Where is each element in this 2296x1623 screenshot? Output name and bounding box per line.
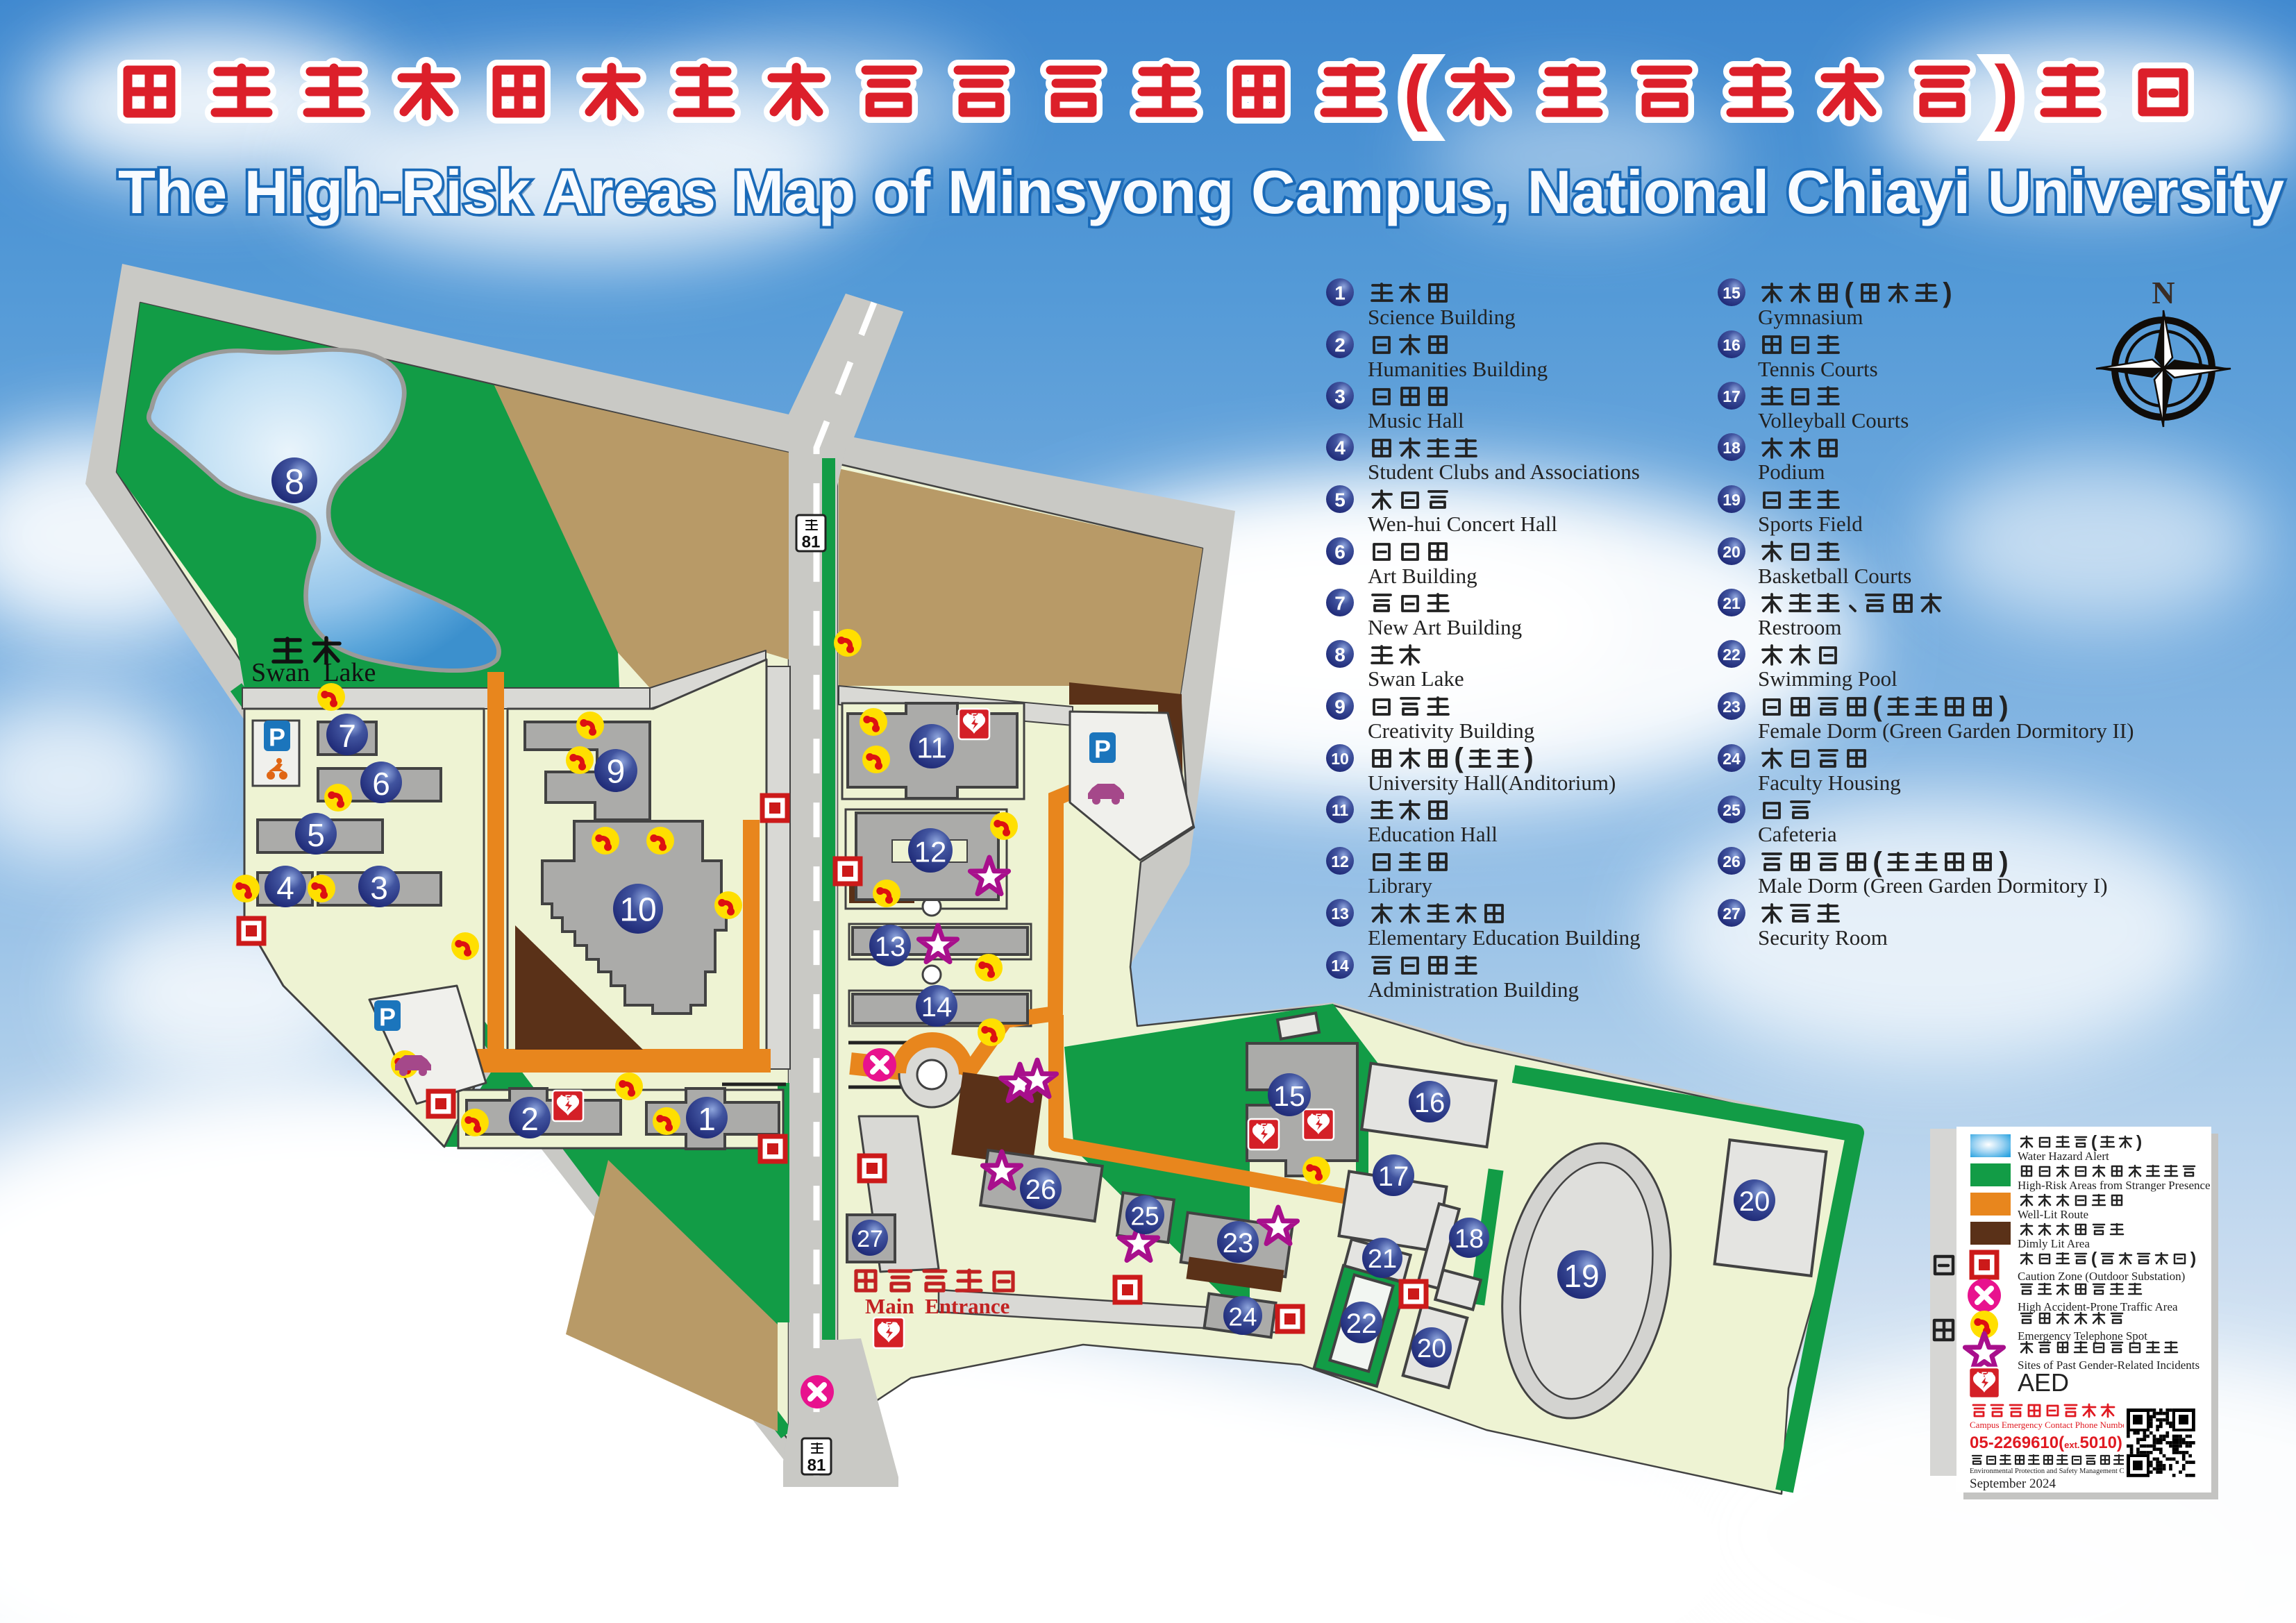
svg-text:Library: Library (1368, 873, 1432, 898)
svg-text:21: 21 (1368, 1245, 1397, 1274)
svg-text:Podium: Podium (1758, 460, 1825, 484)
svg-text:16: 16 (1723, 336, 1741, 354)
svg-text:Water Hazard Alert: Water Hazard Alert (2018, 1150, 2109, 1163)
svg-text:9: 9 (607, 754, 626, 791)
svg-text:20: 20 (1739, 1186, 1770, 1217)
svg-text:23: 23 (1223, 1228, 1254, 1259)
svg-text:24: 24 (1228, 1303, 1257, 1331)
svg-text:Main Entrance: Main Entrance (865, 1294, 1009, 1318)
svg-text:25: 25 (1130, 1202, 1159, 1231)
svg-text:Restroom: Restroom (1758, 615, 1842, 639)
svg-text:Humanities Building: Humanities Building (1368, 357, 1548, 381)
svg-text:Education Hall: Education Hall (1368, 822, 1498, 846)
svg-text:Sports Field: Sports Field (1758, 512, 1863, 536)
svg-text:(: ( (1872, 691, 1882, 722)
svg-text:Swimming Pool: Swimming Pool (1758, 666, 1897, 691)
svg-text:11: 11 (1332, 801, 1349, 819)
svg-text:(: ( (1454, 743, 1464, 773)
svg-text:27: 27 (857, 1226, 883, 1252)
svg-text:Male Dorm (Green Garden Dormit: Male Dorm (Green Garden Dormitory I) (1758, 873, 2108, 898)
svg-text:7: 7 (338, 718, 356, 754)
svg-text:Security Room: Security Room (1758, 925, 1888, 950)
svg-text:Elementary Education Building: Elementary Education Building (1368, 925, 1641, 950)
svg-text:Science Building: Science Building (1368, 305, 1516, 329)
svg-text:Student Clubs and Associations: Student Clubs and Associations (1368, 460, 1640, 484)
svg-text:4: 4 (276, 870, 294, 906)
svg-text:Female Dorm (Green Garden Dorm: Female Dorm (Green Garden Dormitory II) (1758, 718, 2134, 743)
svg-text:12: 12 (1331, 852, 1349, 871)
svg-text:2: 2 (1334, 335, 1346, 356)
svg-text:(: ( (2091, 1249, 2097, 1268)
svg-text:(: ( (2091, 1132, 2097, 1152)
svg-text:27: 27 (1723, 905, 1741, 923)
svg-text:The High-Risk Areas Map of Min: The High-Risk Areas Map of Minsyong Camp… (118, 158, 2284, 226)
svg-text:Cafeteria: Cafeteria (1758, 822, 1837, 846)
svg-text:Basketball Courts: Basketball Courts (1758, 564, 1911, 588)
svg-text:26: 26 (1025, 1175, 1057, 1205)
svg-text:Swan Lake: Swan Lake (1368, 666, 1464, 691)
svg-text:Environmental Protection and S: Environmental Protection and Safety Mana… (1970, 1468, 2139, 1475)
svg-text:9: 9 (1334, 696, 1346, 718)
svg-text:): ) (2136, 1132, 2142, 1152)
svg-text:Volleyball Courts: Volleyball Courts (1758, 408, 1909, 432)
svg-text:Creativity Building: Creativity Building (1368, 718, 1534, 743)
svg-text:12: 12 (914, 836, 947, 868)
svg-text:P: P (1094, 735, 1111, 764)
svg-text:7: 7 (1334, 593, 1346, 614)
svg-text:Gymnasium: Gymnasium (1758, 305, 1863, 329)
svg-text:Caution Zone (Outdoor Substati: Caution Zone (Outdoor Substation) (2018, 1270, 2185, 1283)
svg-text:05-2269610(ext.5010): 05-2269610(ext.5010) (1970, 1433, 2122, 1452)
svg-text:81: 81 (807, 1456, 826, 1475)
svg-text:8: 8 (1334, 644, 1346, 666)
svg-text:81: 81 (802, 533, 821, 552)
svg-text:4: 4 (1334, 437, 1346, 459)
svg-text:22: 22 (1346, 1309, 1377, 1339)
svg-text:Tennis Courts: Tennis Courts (1758, 357, 1878, 381)
svg-text:16: 16 (1414, 1088, 1446, 1118)
svg-text:17: 17 (1723, 387, 1741, 405)
svg-text:): ) (1999, 691, 2008, 722)
svg-text:20: 20 (1723, 543, 1741, 561)
svg-text:New Art Building: New Art Building (1368, 615, 1522, 639)
svg-text:2: 2 (521, 1101, 539, 1137)
svg-text:Wen-hui Concert Hall: Wen-hui Concert Hall (1368, 512, 1557, 536)
svg-text:15: 15 (1723, 284, 1741, 302)
svg-text:1: 1 (698, 1101, 716, 1137)
svg-text:18: 18 (1455, 1225, 1484, 1254)
svg-text:10: 10 (619, 892, 656, 929)
svg-text:High-Risk Areas from Stranger: High-Risk Areas from Stranger Presence (2018, 1179, 2211, 1192)
svg-text:22: 22 (1723, 646, 1741, 664)
svg-text:P: P (379, 1003, 396, 1032)
svg-text:14: 14 (921, 992, 953, 1023)
svg-text:5: 5 (1334, 489, 1346, 511)
svg-text:Dimly Lit Area: Dimly Lit Area (2018, 1237, 2090, 1250)
svg-text:6: 6 (1334, 541, 1346, 563)
svg-text:19: 19 (1723, 491, 1741, 509)
svg-text:Swan Lake: Swan Lake (251, 658, 376, 687)
svg-text:Art Building: Art Building (1368, 564, 1477, 588)
svg-text:13: 13 (875, 932, 906, 962)
svg-text:15: 15 (1273, 1080, 1305, 1112)
svg-text:25: 25 (1723, 801, 1741, 819)
svg-text:AED: AED (2018, 1368, 2069, 1397)
svg-text:14: 14 (1331, 957, 1349, 975)
svg-text:11: 11 (916, 732, 947, 764)
svg-text:26: 26 (1723, 852, 1741, 871)
svg-text:): ) (2190, 1249, 2196, 1268)
svg-text:Music Hall: Music Hall (1368, 408, 1464, 432)
svg-text:): ) (1524, 743, 1533, 773)
svg-text:18: 18 (1723, 439, 1741, 457)
svg-text:10: 10 (1331, 750, 1349, 768)
svg-text:3: 3 (1334, 386, 1346, 407)
svg-text:23: 23 (1723, 698, 1741, 716)
svg-text:Emergency Telephone Spot: Emergency Telephone Spot (2018, 1329, 2147, 1343)
svg-text:21: 21 (1723, 594, 1741, 612)
svg-text:): ) (1995, 51, 2019, 133)
svg-text:17: 17 (1378, 1161, 1409, 1192)
svg-text:20: 20 (1417, 1334, 1446, 1363)
svg-text:P: P (269, 723, 285, 752)
svg-text:Faculty Housing: Faculty Housing (1758, 771, 1901, 795)
svg-text:19: 19 (1564, 1258, 1599, 1294)
svg-text:8: 8 (285, 462, 304, 502)
svg-text:1: 1 (1334, 283, 1346, 304)
svg-text:24: 24 (1723, 750, 1741, 768)
svg-text:13: 13 (1331, 905, 1349, 923)
svg-text:(: ( (1404, 51, 1428, 133)
svg-text:N: N (2152, 275, 2175, 310)
svg-text:High Accident-Prone Traffic Ar: High Accident-Prone Traffic Area (2018, 1300, 2178, 1313)
svg-text:Well-Lit Route: Well-Lit Route (2018, 1208, 2088, 1221)
svg-text:University Hall(Anditorium): University Hall(Anditorium) (1368, 771, 1616, 795)
svg-text:6: 6 (372, 766, 390, 802)
svg-text:Administration Building: Administration Building (1368, 977, 1579, 1002)
svg-text:): ) (1943, 278, 1952, 308)
svg-text:Campus Emergency Contact Phone: Campus Emergency Contact Phone Number (1970, 1420, 2130, 1430)
svg-text:September 2024: September 2024 (1970, 1477, 2056, 1491)
svg-text:(: ( (1844, 278, 1854, 308)
svg-text:3: 3 (370, 870, 388, 906)
svg-text:5: 5 (307, 817, 325, 853)
